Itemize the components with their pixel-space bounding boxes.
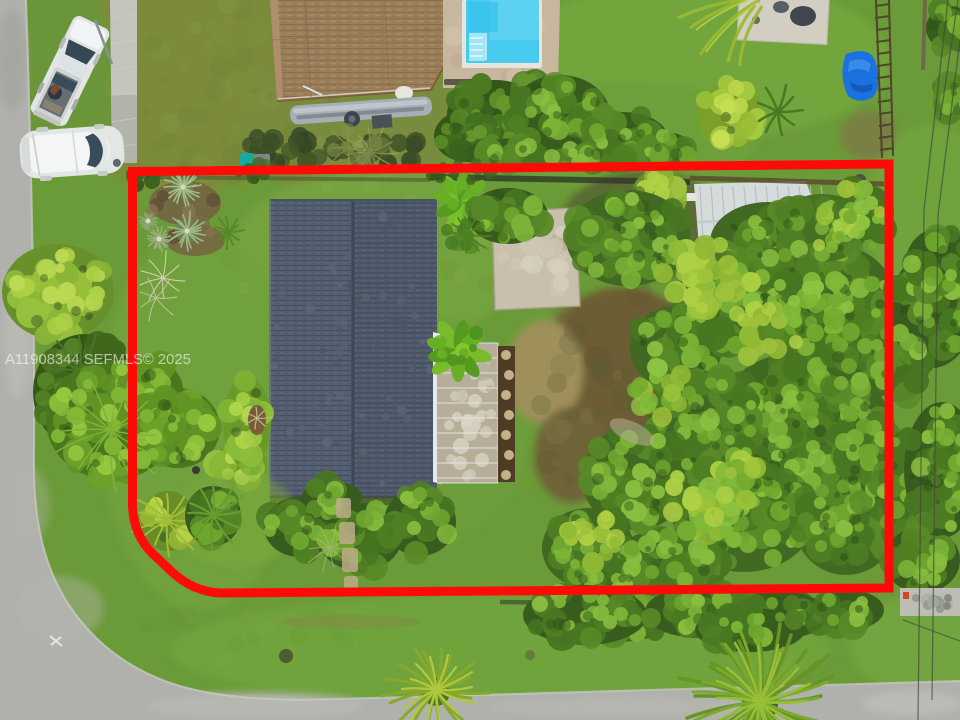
svg-text:A11908344 SEFMLS© 2025: A11908344 SEFMLS© 2025 [5,352,191,368]
